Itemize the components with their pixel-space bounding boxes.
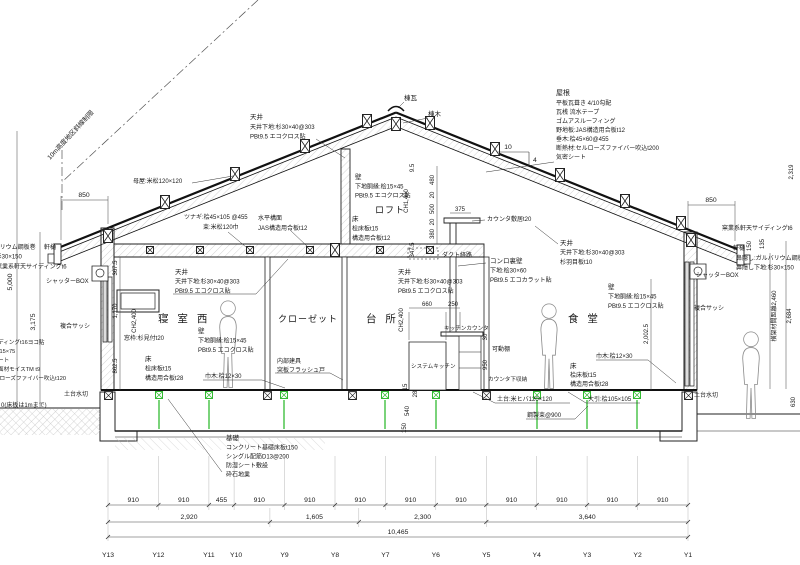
ceiling-ridge-0: 天井 xyxy=(250,112,264,121)
fascia-base-right-label: 鼻隠し下地:杉30×150 xyxy=(736,264,795,272)
loft-wall-0: 壁 xyxy=(355,172,362,181)
dim-seg-10: 910 xyxy=(607,497,619,504)
ceiling-kitchen-2: PBt9.5 エコクロス貼 xyxy=(398,287,454,295)
shutter-left-label: シャッターBOX xyxy=(46,277,89,285)
grid-y5: Y5 xyxy=(482,552,491,559)
wall-west-2: PBt9.5 エコクロス貼 xyxy=(198,346,254,354)
loft-wall-2: PBt9.5 エコクロス貼 xyxy=(355,192,411,200)
loft-wall-left xyxy=(341,149,350,244)
slope-run-label: 10 xyxy=(504,144,512,151)
dim-seg-5: 910 xyxy=(355,497,367,504)
dim-3175: 3,175 xyxy=(30,313,37,330)
dim-f15: 15 xyxy=(403,383,409,390)
dim-2319: 2,319 xyxy=(789,164,795,180)
dim-loft-20a: 20 xyxy=(430,191,436,198)
fascia-right-label: 鼻隠し:ガルバリウム鋼板巻 xyxy=(736,254,800,262)
counter-sill-label: カウンタ敷居t20 xyxy=(487,215,532,223)
dim-seg-3: 910 xyxy=(254,497,266,504)
sash-left-outer xyxy=(103,277,107,342)
floor-dining-1: 桧床板t15 xyxy=(570,371,597,379)
ceiling-west-0: 天井 xyxy=(175,267,189,276)
dim-seg-8: 910 xyxy=(506,497,518,504)
sash-right-label: 複合サッシ xyxy=(694,304,724,312)
dim-f150: 150 xyxy=(402,422,408,433)
ridge-beam-label: 棟木 xyxy=(428,109,442,118)
dim-ch2400-west: CH2,400 xyxy=(132,309,138,333)
wall-dining-1: 下地胴縁:桧15×45 xyxy=(608,293,657,301)
ground-hatch-left-b xyxy=(0,409,100,435)
dim-loft-375: 375 xyxy=(455,207,466,213)
sash-right-inner xyxy=(690,262,694,386)
room-bedroom-label: 寝 室 西 xyxy=(158,312,210,325)
dim-862: 862.5 xyxy=(113,358,119,374)
ceiling-dining-1: 天井下地:杉30×40@303 xyxy=(560,249,625,257)
shelves-label: 可動棚 xyxy=(492,345,510,353)
purlin-label: 母屋:米松120×120 xyxy=(133,177,183,185)
kitchen-counter-label: キッチンカウンタ xyxy=(444,324,489,332)
ceiling-dining-0: 天井 xyxy=(560,238,574,247)
wall-dining-2: PBt9.5 エコクロス貼 xyxy=(608,302,664,310)
stove-wall-1: 下地:桧30×60 xyxy=(490,267,527,275)
stove-wall-2: PBt9.5 エコカラット貼 xyxy=(490,276,552,284)
system-kitchen-label: システムキッチン xyxy=(411,363,456,370)
dim-ch1400: CH1,400 xyxy=(404,189,410,213)
grid-y6: Y6 xyxy=(432,552,441,559)
soffit-right-label: 窯業系軒天サイディングt6 xyxy=(722,224,793,232)
loft-room-label: ロフト xyxy=(375,205,405,215)
stove-back-wall xyxy=(450,257,456,334)
dimension-lines xyxy=(17,131,786,537)
steel-post-caps xyxy=(156,392,641,399)
siding-0: 窯業系サイディングt16ヨコ貼 xyxy=(0,338,45,346)
ceiling-ridge-2: PBt9.5 エコクロス貼 xyxy=(250,133,306,141)
ceiling-kitchen-1: 天井下地:杉30×40@303 xyxy=(398,278,463,286)
sill-beam-label: 土台:米ヒバ120×120 xyxy=(497,395,553,403)
grid-y4: Y4 xyxy=(533,552,542,559)
room-closet-label: クローゼット xyxy=(278,313,338,324)
stove-wall-0: コンロ裏壁 xyxy=(490,256,523,265)
dim-seg-6: 910 xyxy=(405,497,417,504)
dim-seg-0: 910 xyxy=(128,497,140,504)
dim-seg-9: 910 xyxy=(556,497,568,504)
dim-left-850: 850 xyxy=(78,192,90,199)
ceiling-ridge-1: 天井下地:杉30×40@303 xyxy=(250,123,315,131)
floor-dining-0: 床 xyxy=(570,361,577,370)
roof-spec-7: 気密シート xyxy=(556,153,586,161)
dim-ch2400-kitchen: CH2,400 xyxy=(399,308,405,332)
foundation-4: 砕石地業 xyxy=(226,471,250,479)
counter-storage-label: カウンタ下収納 xyxy=(488,375,528,383)
dim-5000: 5,000 xyxy=(7,273,14,290)
roof-spec-4: 野地板:JAS構造用合板t12 xyxy=(556,126,626,134)
siding-3: 構造用耐力面材モイスTM t9 xyxy=(0,365,40,373)
baseboard-right-label: 巾木:桧12×30 xyxy=(596,352,633,360)
window-frame-label: 窓枠:杉見付t20 xyxy=(124,334,165,342)
dim-total: 10,465 xyxy=(388,529,409,536)
loft-counter-top xyxy=(444,218,480,223)
baseboard-left-label: 巾木:桧12×30 xyxy=(205,372,242,380)
roof-spec-1: 平板瓦葺き 4/10勾配 xyxy=(556,99,611,107)
grid-y8: Y8 xyxy=(331,552,340,559)
horizontal-plane-1: JAS構造用合板t12 xyxy=(258,224,308,232)
dim-seg-7: 910 xyxy=(455,497,467,504)
dim-k950: 950 xyxy=(483,359,489,370)
floor-joist-label: 大引:桧105×105 xyxy=(588,395,632,403)
loft-half-wall xyxy=(450,223,456,244)
floor-west-1: 桧床板t15 xyxy=(145,365,172,373)
sash-left-inner xyxy=(108,277,112,342)
foundation-1: コンクリート基礎床板t150 xyxy=(226,444,298,452)
grid-y12: Y12 xyxy=(152,552,164,559)
grid-y9: Y9 xyxy=(280,552,289,559)
dim-k660: 660 xyxy=(422,302,433,308)
siding-1: 通気胴縁:桧15×75 xyxy=(0,347,15,355)
dim-loft-95: 9.5 xyxy=(410,163,416,172)
steel-post-label: 鋼製束@900 xyxy=(527,411,562,419)
foundation-2: シングル配筋D13@200 xyxy=(226,453,290,461)
loft-floor-0: 床 xyxy=(352,214,359,223)
loft-wall-1: 下地胴縁:桧15×45 xyxy=(355,183,404,191)
soffit-left-label: 窯業系軒天サイディングt6 xyxy=(0,263,67,271)
dim-150: 150 xyxy=(747,240,753,251)
interior-door-1: 突板フラッシュ戸 xyxy=(277,366,325,374)
dim-f540: 540 xyxy=(405,405,411,416)
gutter-left-label: 軒樋 xyxy=(44,243,56,251)
dim-k250: 250 xyxy=(448,302,459,308)
gl-note-label: 0(床板は1mまで) xyxy=(1,401,47,409)
roof-spec-5: 垂木:桧45×60@455 xyxy=(556,135,609,143)
ceiling-kitchen-0: 天井 xyxy=(398,267,412,276)
partition-closet-kitchen xyxy=(342,257,347,390)
section-drawing-svg: 10m高度地区斜線制限 xyxy=(0,0,800,565)
siding-2: 透湿防水シート xyxy=(0,356,9,364)
shutter-box-left xyxy=(92,266,108,281)
dim-seg-2: 455 xyxy=(216,497,228,504)
dim-group-1: 1,605 xyxy=(306,514,323,521)
loft-floor-1: 桧床板t15 xyxy=(352,225,379,233)
water-drip-left-label: 土台水切 xyxy=(64,390,88,398)
floor-west-2: 構造用合板t28 xyxy=(145,374,184,382)
wall-west-0: 壁 xyxy=(198,326,205,335)
dim-seg-1: 910 xyxy=(178,497,190,504)
ridge-cap xyxy=(388,107,404,112)
gutter-right-label: 軒樋 xyxy=(733,244,745,252)
water-drip-right-label: 土台水切 xyxy=(694,391,718,399)
grid-y2: Y2 xyxy=(633,552,642,559)
dim-loft-500: 500 xyxy=(430,203,436,214)
dim-loft-480: 480 xyxy=(430,174,436,185)
ceiling-dining-2: 杉羽目板t10 xyxy=(560,258,593,266)
steel-floor-posts xyxy=(159,400,637,429)
sash-left-label: 複合サッシ xyxy=(60,322,90,330)
grid-y1: Y1 xyxy=(684,552,693,559)
loft-floor-2: 構造用合板t12 xyxy=(352,234,391,242)
dim-367: 367.5 xyxy=(113,260,119,276)
ceiling-west-2: PBt9.5 エコクロス貼 xyxy=(175,287,231,295)
dim-loft-20b: 20 xyxy=(430,218,436,225)
roof-spec-3: ゴムアスルーフィング xyxy=(556,117,616,125)
horizontal-plane-0: 水平構面 xyxy=(258,214,282,222)
person-outside xyxy=(743,332,760,418)
siding-4: 断熱材:セルローズファイバー吹込t120 xyxy=(0,374,66,382)
dim-loft-380: 380 xyxy=(430,228,436,239)
counter-storage-box xyxy=(459,336,481,390)
room-kitchen-label: 台 所 xyxy=(366,312,399,325)
sash-right-outer xyxy=(685,262,689,386)
dim-group-3: 3,640 xyxy=(579,514,596,521)
dim-group-2: 2,300 xyxy=(414,514,431,521)
dim-beam-span: 横架材間距離2,460 xyxy=(770,290,778,342)
dim-k30: 30 xyxy=(483,333,489,340)
ridge-tile-label: 棟瓦 xyxy=(404,93,418,102)
loft-post-label: 束:米松120巾 xyxy=(203,223,239,231)
grid-y11: Y11 xyxy=(203,552,215,559)
foundation-0: 基礎 xyxy=(226,433,240,442)
roof-spec-2: 瓦桟 流水テープ xyxy=(556,108,599,116)
grid-y7: Y7 xyxy=(381,552,390,559)
dim-right-850: 850 xyxy=(705,197,717,204)
interior-door-0: 内部建具 xyxy=(277,357,301,365)
floor-dining-2: 構造用合板t28 xyxy=(570,380,609,388)
dim-2684: 2,684 xyxy=(787,308,793,324)
wall-dining-0: 壁 xyxy=(608,282,615,291)
gutter-left xyxy=(48,254,54,263)
foundation xyxy=(0,392,800,451)
dim-630: 630 xyxy=(791,396,797,407)
fascia-left-label: 鼻隠し:ガルバリウム鋼板巻 xyxy=(0,243,36,251)
tie-label: ツナギ:桧45×105 @455 xyxy=(184,213,248,221)
duct-label: ダクト経路 xyxy=(442,251,472,259)
ceiling-west-1: 天井下地:杉30×40@303 xyxy=(175,278,240,286)
dim-seg-11: 910 xyxy=(657,497,669,504)
roof-spec-title: 屋根 xyxy=(556,88,570,97)
section-drawing: 10m高度地区斜線制限 xyxy=(0,0,800,565)
fascia-base-left-label: 鼻隠し下地:杉30×150 xyxy=(0,253,23,261)
person-dining xyxy=(541,304,557,389)
floor-west-0: 床 xyxy=(145,354,152,363)
grid-y3: Y3 xyxy=(583,552,592,559)
height-limit-label: 10m高度地区斜線制限 xyxy=(45,108,96,162)
dim-3475: 347.5 xyxy=(410,242,416,258)
slope-rise-label: 4 xyxy=(533,157,537,164)
kitchen-counter-top xyxy=(441,332,483,336)
dim-group-0: 2,920 xyxy=(180,514,197,521)
dim-seg-4: 910 xyxy=(304,497,316,504)
partition-bedroom-closet xyxy=(265,257,270,390)
dim-135: 135 xyxy=(760,238,766,249)
bedroom-window-glass xyxy=(121,293,155,309)
grid-y13: Y13 xyxy=(102,552,114,559)
dim-1170: 1,170 xyxy=(113,303,119,319)
dim-f28: 28 xyxy=(413,390,419,397)
room-dining-label: 食 堂 xyxy=(568,312,601,325)
foundation-3: 防湿シート敷設 xyxy=(226,462,268,470)
wall-west-1: 下地胴縁:桧15×45 xyxy=(198,337,247,345)
shutter-right-label: シャッターBOX xyxy=(696,271,739,279)
dim-20025: 2,002.5 xyxy=(644,323,650,344)
grid-y10: Y10 xyxy=(230,552,242,559)
roof-spec-6: 断熱材:セルローズファイバー吹込t200 xyxy=(556,144,660,152)
